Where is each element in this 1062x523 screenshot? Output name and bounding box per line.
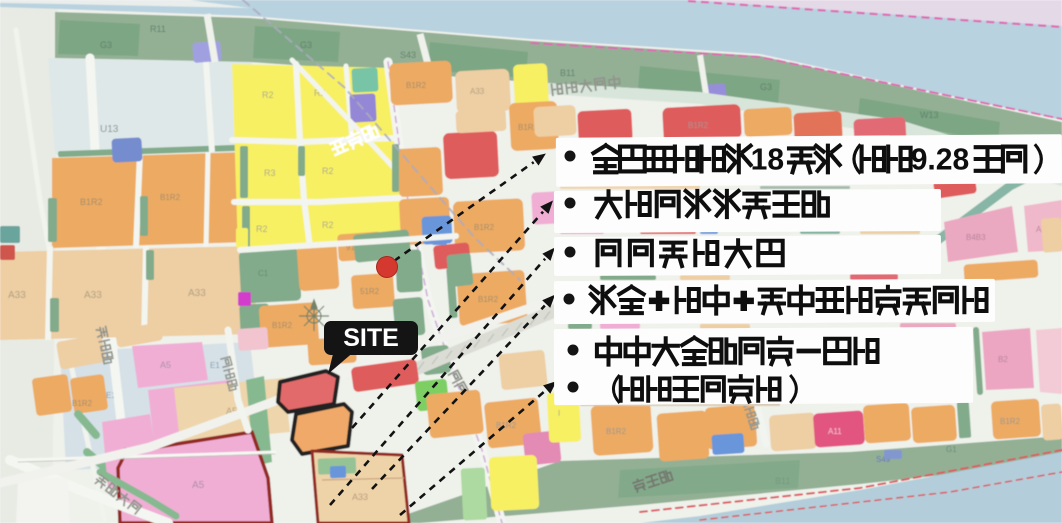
svg-text:9.28: 9.28	[911, 143, 970, 176]
svg-text:SITE: SITE	[343, 324, 399, 352]
svg-text:18: 18	[751, 143, 784, 176]
